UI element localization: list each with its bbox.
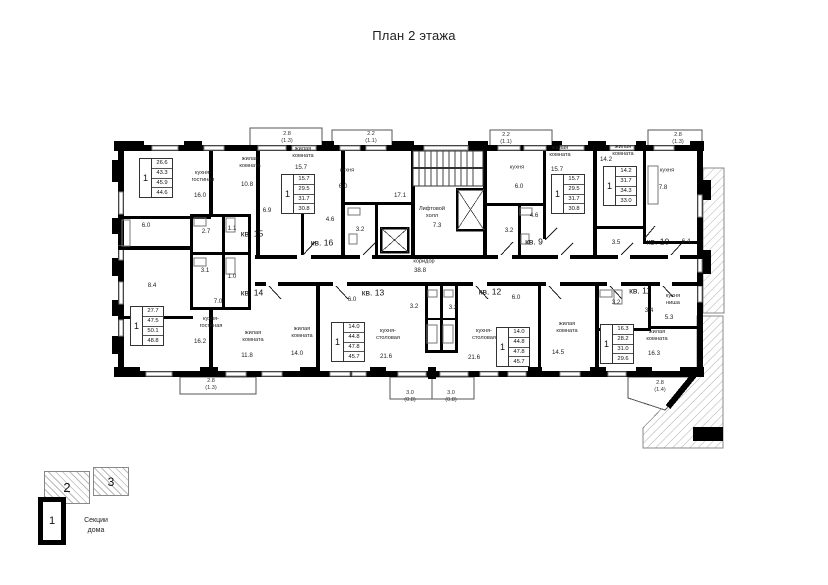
room-area-label: 3.2 (356, 226, 365, 234)
balcony-area-label: 2.2 (1.1) (500, 132, 512, 146)
room-name-label: кухня- гостиная (192, 170, 215, 184)
room-name-label: жилая комната (646, 329, 667, 343)
room-area-label: 38.8 (414, 267, 426, 275)
room-area-label: 14.2 (600, 156, 612, 164)
room-area-label: 6.9 (263, 207, 272, 215)
room-count: 1 (140, 159, 152, 197)
room-area-label: 15.7 (295, 164, 307, 172)
room-area-label: 3.2 (505, 227, 514, 235)
apartment-info-block: 116.328.231.029.6 (600, 324, 634, 364)
section-3-box[interactable]: 3 (93, 467, 129, 496)
area-value: 50.1 (143, 327, 163, 337)
room-name-label: жилая комната (239, 156, 260, 170)
section-3-label: 3 (108, 475, 115, 489)
room-area-label: 6.0 (348, 296, 357, 304)
room-count: 1 (604, 167, 616, 205)
balcony-area-label: 2.2 (1.1) (365, 131, 377, 145)
area-value: 31.7 (564, 195, 584, 205)
area-value: 44.8 (509, 338, 529, 348)
room-area-label: 21.6 (380, 353, 392, 361)
room-area-label: 14.5 (552, 349, 564, 357)
room-area-label: 1.0 (228, 273, 237, 281)
apartment-info-block: 127.747.550.148.8 (130, 306, 164, 346)
area-value: 45.7 (344, 352, 364, 361)
room-count: 1 (601, 325, 613, 363)
room-count: 1 (552, 175, 564, 213)
apartment-number-label: кв. 11 (629, 286, 651, 297)
area-value: 29.6 (613, 354, 633, 363)
area-value: 14.0 (509, 328, 529, 338)
room-area-label: 15.7 (551, 166, 563, 174)
room-name-label: кухня (340, 168, 354, 175)
room-name-label: жилая комната (549, 145, 570, 159)
apartment-number-label: кв. 13 (362, 288, 384, 299)
room-name-label: Лифтовой холл (419, 206, 445, 220)
room-area-label: 16.3 (648, 350, 660, 358)
room-name-label: коридор (413, 259, 434, 266)
section-1-label: 1 (49, 515, 55, 527)
apartment-info-block: 114.044.847.845.7 (496, 327, 530, 367)
room-area-label: 3.5 (612, 239, 621, 247)
area-value: 44.8 (344, 333, 364, 343)
room-name-label: жилая комната (556, 321, 577, 335)
room-area-label: 4.6 (530, 212, 539, 220)
area-value: 31.0 (613, 345, 633, 355)
area-value: 29.5 (564, 185, 584, 195)
room-area-label: 2.7 (202, 228, 211, 236)
room-area-label: 3.2 (612, 299, 621, 307)
room-count: 1 (131, 307, 143, 345)
apartment-info-block: 115.729.531.730.8 (281, 174, 315, 214)
area-value: 27.7 (143, 307, 163, 317)
room-area-label: 5.3 (665, 314, 674, 322)
area-value: 43.3 (152, 169, 172, 179)
room-name-label: жилая комната (242, 330, 263, 344)
area-value: 47.8 (344, 343, 364, 353)
area-value: 48.8 (143, 336, 163, 345)
area-value: 47.5 (143, 317, 163, 327)
apartment-number-label: кв. 14 (241, 288, 263, 299)
room-area-label: 7.3 (433, 222, 442, 230)
floor-plan-sheet: План 2 этажа (0, 0, 828, 585)
balcony-area-label: 3.0 (0.8) (445, 390, 457, 404)
room-count: 1 (332, 323, 344, 361)
balcony-area-label: 2.8 (1.3) (281, 131, 293, 145)
apartment-info-block: 126.643.345.944.6 (139, 158, 173, 198)
room-count: 1 (497, 328, 509, 366)
room-area-label: 14.0 (291, 350, 303, 358)
room-name-label: жилая комната (292, 146, 313, 160)
area-value: 30.8 (294, 204, 314, 213)
room-area-label: 6.4 (682, 238, 691, 246)
room-area-label: 6.0 (142, 222, 151, 230)
room-name-label: кухня (660, 168, 674, 175)
section-2-label: 2 (63, 480, 70, 495)
area-value: 16.3 (613, 325, 633, 335)
room-area-label: 6.0 (512, 294, 521, 302)
room-area-label: 3.4 (645, 307, 654, 315)
room-area-label: 10.8 (241, 181, 253, 189)
balcony-area-label: 3.0 (0.8) (404, 390, 416, 404)
area-value: 14.0 (344, 323, 364, 333)
balcony-area-label: 2.8 (1.3) (205, 378, 217, 392)
area-value: 47.8 (509, 348, 529, 358)
room-area-label: 3.1 (201, 267, 210, 275)
apartment-info-block: 114.044.847.845.7 (331, 322, 365, 362)
apartment-number-label: кв. 16 (311, 238, 333, 249)
room-name-label: кухня ниша (666, 293, 680, 307)
area-value: 14.2 (616, 167, 636, 177)
apartment-number-label: кв. 10 (647, 237, 669, 248)
area-value: 29.5 (294, 185, 314, 195)
apartment-number-label: кв. 12 (479, 287, 501, 298)
area-value: 28.2 (613, 335, 633, 345)
room-area-label: 16.2 (194, 338, 206, 346)
area-value: 45.7 (509, 357, 529, 366)
room-count: 1 (282, 175, 294, 213)
room-area-label: 17.1 (394, 192, 406, 200)
area-value: 33.0 (616, 196, 636, 205)
area-value: 45.9 (152, 179, 172, 189)
room-area-label: 7.8 (659, 184, 668, 192)
area-value: 31.7 (294, 195, 314, 205)
apartment-info-block: 114.231.734.333.0 (603, 166, 637, 206)
plan-labels-layer: кв. 15кв. 16кв. 9кв. 10кв. 14кв. 13кв. 1… (0, 0, 828, 585)
room-name-label: кухня- столовая (472, 328, 496, 342)
room-area-label: 3.2 (410, 303, 419, 311)
area-value: 44.6 (152, 188, 172, 197)
room-area-label: 3.2 (449, 304, 458, 312)
room-name-label: жилая комната (612, 144, 633, 158)
room-area-label: 6.0 (515, 183, 524, 191)
balcony-area-label: 2.8 (1.3) (672, 132, 684, 146)
area-value: 15.7 (564, 175, 584, 185)
balcony-area-label: 2.8 (1.4) (654, 380, 666, 394)
room-area-label: 4.6 (326, 216, 335, 224)
room-area-label: 11.8 (241, 352, 253, 360)
apartment-info-block: 115.729.531.730.8 (551, 174, 585, 214)
area-value: 15.7 (294, 175, 314, 185)
apartment-number-label: кв. 9 (525, 237, 543, 248)
room-name-label: кухня (510, 165, 524, 172)
area-value: 31.7 (616, 177, 636, 187)
room-name-label: кухня- гостиная (200, 316, 223, 330)
area-value: 26.6 (152, 159, 172, 169)
room-area-label: 1.1 (228, 225, 237, 233)
room-name-label: жилая комната (291, 326, 312, 340)
room-area-label: 8.4 (148, 282, 157, 290)
room-area-label: 7.0 (214, 298, 223, 306)
area-value: 34.3 (616, 187, 636, 197)
apartment-number-label: кв. 15 (241, 229, 263, 240)
room-area-label: 21.6 (468, 354, 480, 362)
section-1-box[interactable]: 1 (38, 497, 66, 545)
room-name-label: кухня- столовая (376, 328, 400, 342)
room-area-label: 16.0 (194, 192, 206, 200)
area-value: 30.8 (564, 204, 584, 213)
legend-caption: Секции дома (70, 516, 122, 536)
room-area-label: 6.0 (339, 183, 348, 191)
